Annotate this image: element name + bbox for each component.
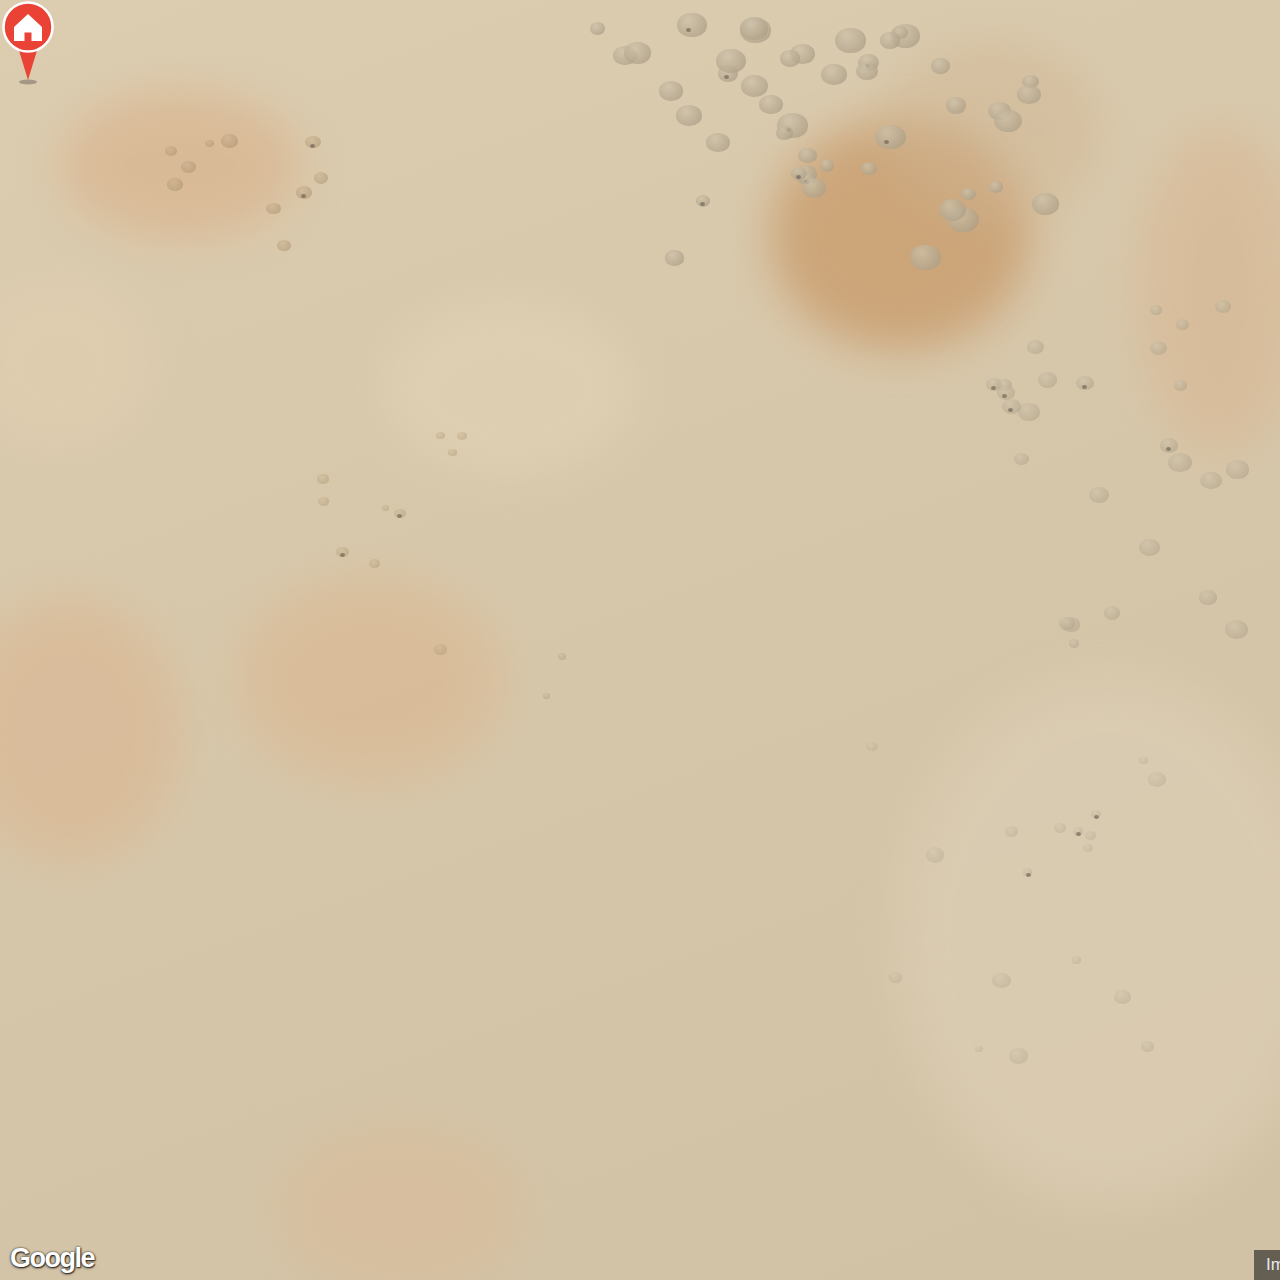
attribution-text: Imagery ©2025 Airbus, CNES / Airbus, Max… xyxy=(1266,1255,1280,1275)
home-pin-icon xyxy=(0,0,56,86)
map-canvas[interactable]: Google Imagery ©2025 Airbus, CNES / Airb… xyxy=(0,0,1280,1280)
attribution-bar: Imagery ©2025 Airbus, CNES / Airbus, Max… xyxy=(1254,1250,1280,1280)
imagery-grid xyxy=(0,0,1280,1280)
google-logo[interactable]: Google xyxy=(10,1243,94,1274)
location-marker[interactable] xyxy=(0,0,56,86)
